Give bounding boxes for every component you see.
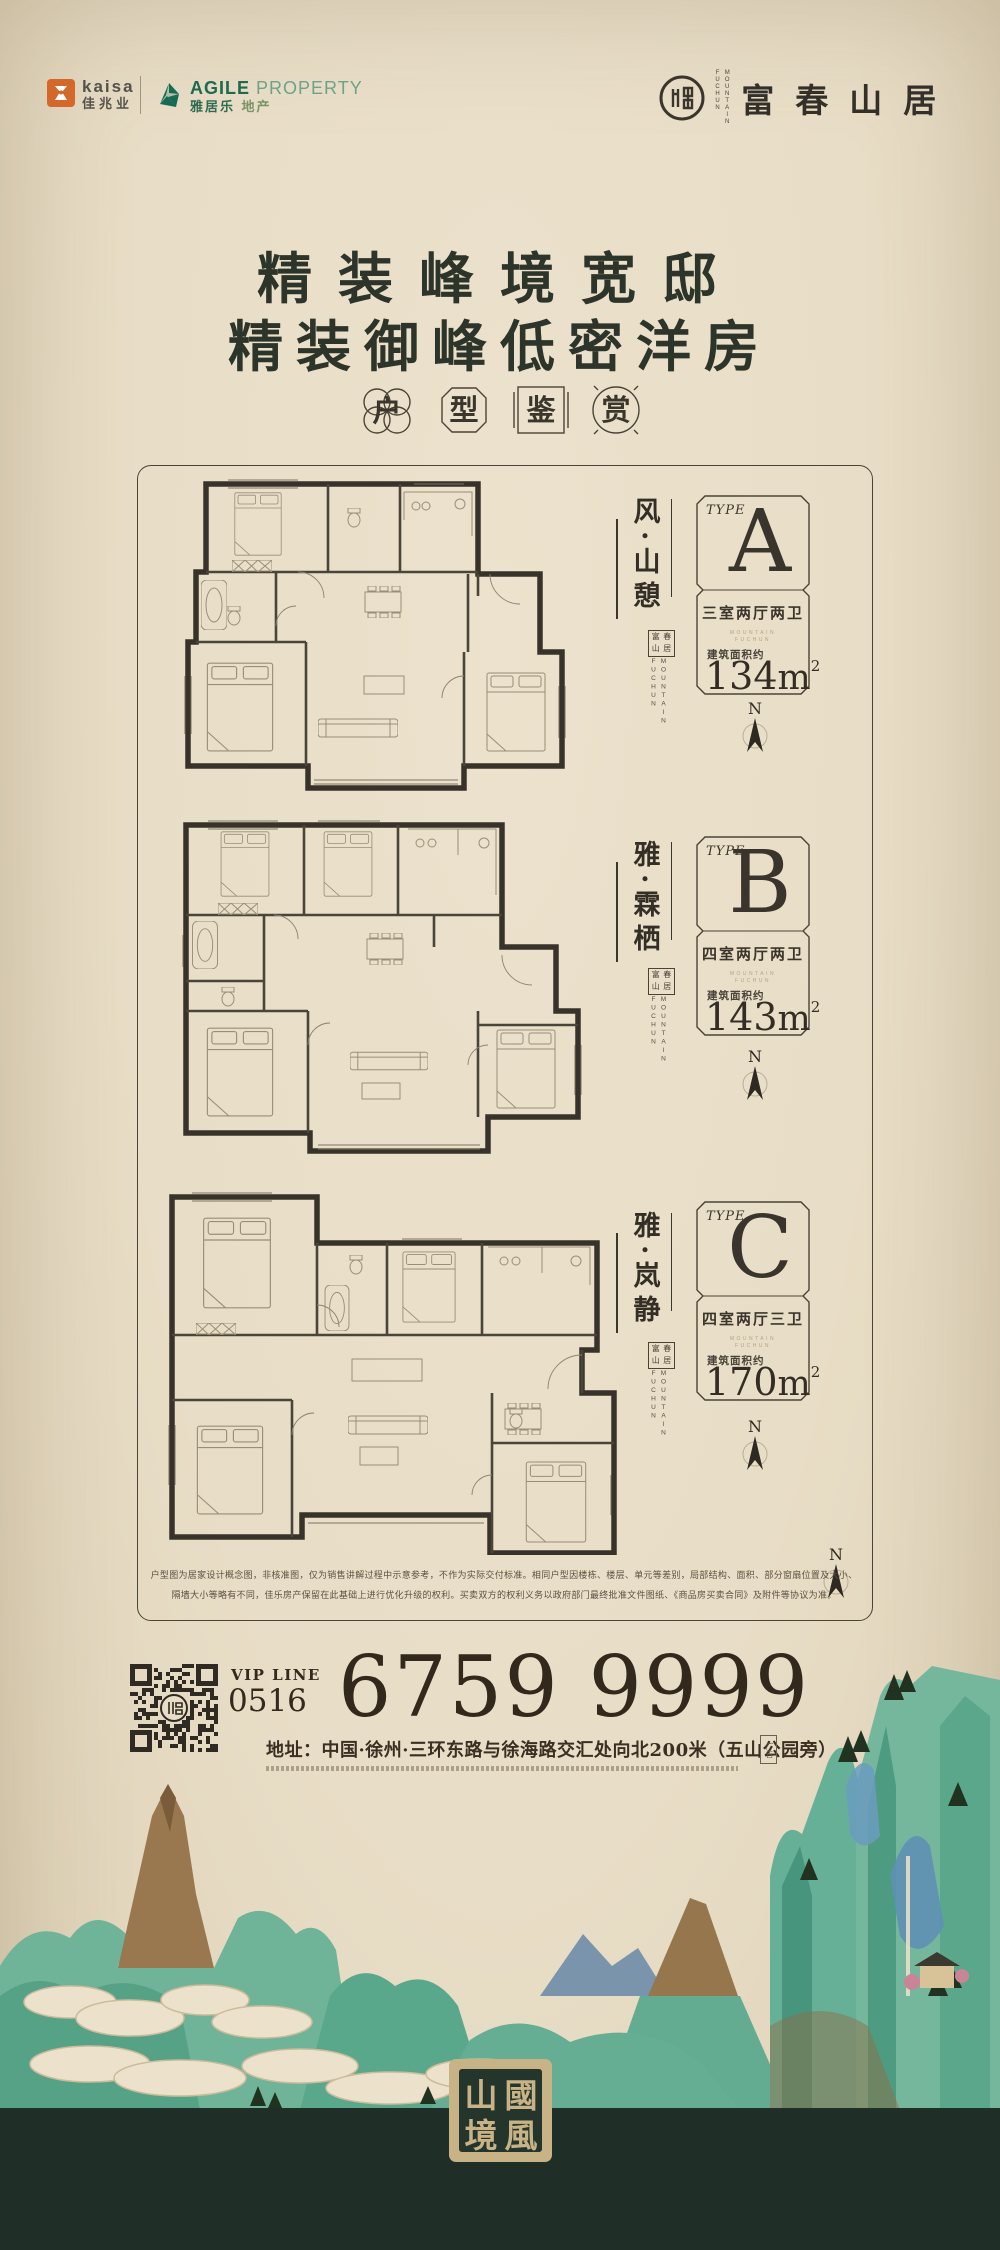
rooms-sub-en: MOUNTAINFUCHUN [695, 1336, 811, 1350]
subtitle-frame-flower: 户 [364, 389, 410, 433]
plan-a-en-vertical: FUCHUNMOUNTAIN [650, 658, 667, 726]
brand-lockup: MOUNTAINFUCHUN 富春山居 [658, 66, 957, 130]
floorplan-a [168, 476, 598, 791]
brand-en-vertical: MOUNTAINFUCHUN [712, 70, 731, 130]
north-arrow-icon [747, 718, 763, 752]
plan-b-card: TYPE B 四室两厅两卫 MOUNTAINFUCHUN 建筑面积约 143m2 [695, 835, 811, 1037]
kaisa-logo-text: kaisa 佳兆业 [82, 78, 135, 111]
plan-a-name: 风·山憩 [616, 497, 672, 619]
brand-name: 富春山居 [741, 74, 957, 122]
footer-stone-seal: 山 國 境 風 [449, 2059, 552, 2162]
compass-a: N [737, 700, 773, 756]
svg-text:赏: 赏 [601, 393, 630, 427]
agile-cn-suffix: 地产 [242, 100, 272, 115]
area-value: 143m2 [705, 995, 820, 1039]
landscape-painting [0, 1666, 1000, 2110]
plan-a-mini-seal: 富春 山居 [648, 630, 675, 657]
rooms-text: 三室两厅两卫 [695, 602, 811, 623]
area-value: 170m2 [705, 1360, 820, 1404]
compass-c: N [737, 1418, 773, 1474]
svg-text:風: 風 [505, 2116, 538, 2155]
kaisa-en: kaisa [82, 78, 135, 95]
svg-text:鉴: 鉴 [525, 393, 556, 427]
svg-text:型: 型 [449, 393, 478, 427]
north-arrow-icon [747, 1436, 763, 1470]
svg-text:N: N [748, 1048, 762, 1066]
type-letter: C [709, 1196, 811, 1298]
header-divider [140, 76, 141, 114]
disclaimer-line1: 户型图为居家设计概念图，非核准图，仅为销售讲解过程中示意参考，不作为实际交付标准… [137, 1568, 871, 1581]
svg-text:N: N [748, 700, 762, 718]
svg-text:N: N [829, 1546, 843, 1564]
agile-en: AGILE [190, 78, 250, 98]
rooms-sub-en: MOUNTAINFUCHUN [695, 630, 811, 644]
subtitle-frame-square: 鉴 [514, 387, 568, 433]
area-value: 134m2 [705, 654, 820, 698]
plan-b-name: 雅·霖栖 [616, 840, 672, 962]
fuchun-seal-icon [658, 74, 706, 122]
plan-a-card: TYPE A 三室两厅两卫 MOUNTAINFUCHUN 建筑面积约 134m2 [695, 494, 811, 696]
north-arrow-icon [747, 1066, 763, 1100]
floorplan-c [152, 1185, 617, 1555]
type-letter: A [709, 490, 811, 592]
compass-b: N [737, 1048, 773, 1104]
subtitle-huxing-jianshang: 户 型 鉴 赏 [350, 378, 650, 444]
plan-c-en-vertical: FUCHUNMOUNTAIN [650, 1370, 667, 1438]
type-letter: B [709, 831, 811, 933]
subtitle-frame-octagon: 型 [442, 388, 486, 432]
svg-text:山: 山 [465, 2076, 498, 2115]
svg-text:境: 境 [465, 2116, 498, 2155]
svg-text:户: 户 [372, 394, 401, 428]
plan-c-mini-seal: 富春 山居 [648, 1342, 675, 1369]
poster: kaisa 佳兆业 AGILE PROPERTY 雅居乐 地产 MOUNTAIN… [0, 0, 1000, 2250]
agile-logo-text: AGILE PROPERTY 雅居乐 地产 [190, 79, 363, 114]
svg-text:N: N [748, 1418, 762, 1436]
rooms-text: 四室两厅两卫 [695, 943, 811, 964]
plan-b-en-vertical: FUCHUNMOUNTAIN [650, 996, 667, 1064]
plan-c-card: TYPE C 四室两厅三卫 MOUNTAINFUCHUN 建筑面积约 170m2 [695, 1200, 811, 1402]
headline-line2: 精装御峰低密洋房 [0, 302, 1000, 382]
disclaimer-line2: 隔墙大小等略有不同，佳乐房产保留在此基础上进行优化升级的权利。买卖双方的权利义务… [137, 1588, 871, 1601]
rooms-sub-en: MOUNTAINFUCHUN [695, 971, 811, 985]
kaisa-logo-icon [47, 79, 75, 107]
floorplan-b [158, 815, 613, 1155]
kaisa-cn: 佳兆业 [82, 98, 135, 111]
subtitle-frame-circle: 赏 [593, 386, 639, 434]
plan-b-mini-seal: 富春 山居 [648, 968, 675, 995]
agile-cn: 雅居乐 [190, 100, 235, 115]
plan-c-name: 雅·岚静 [616, 1211, 672, 1333]
agile-logo-icon [152, 80, 186, 118]
agile-en-suffix: PROPERTY [256, 78, 363, 98]
svg-text:國: 國 [505, 2076, 538, 2115]
rooms-text: 四室两厅三卫 [695, 1308, 811, 1329]
